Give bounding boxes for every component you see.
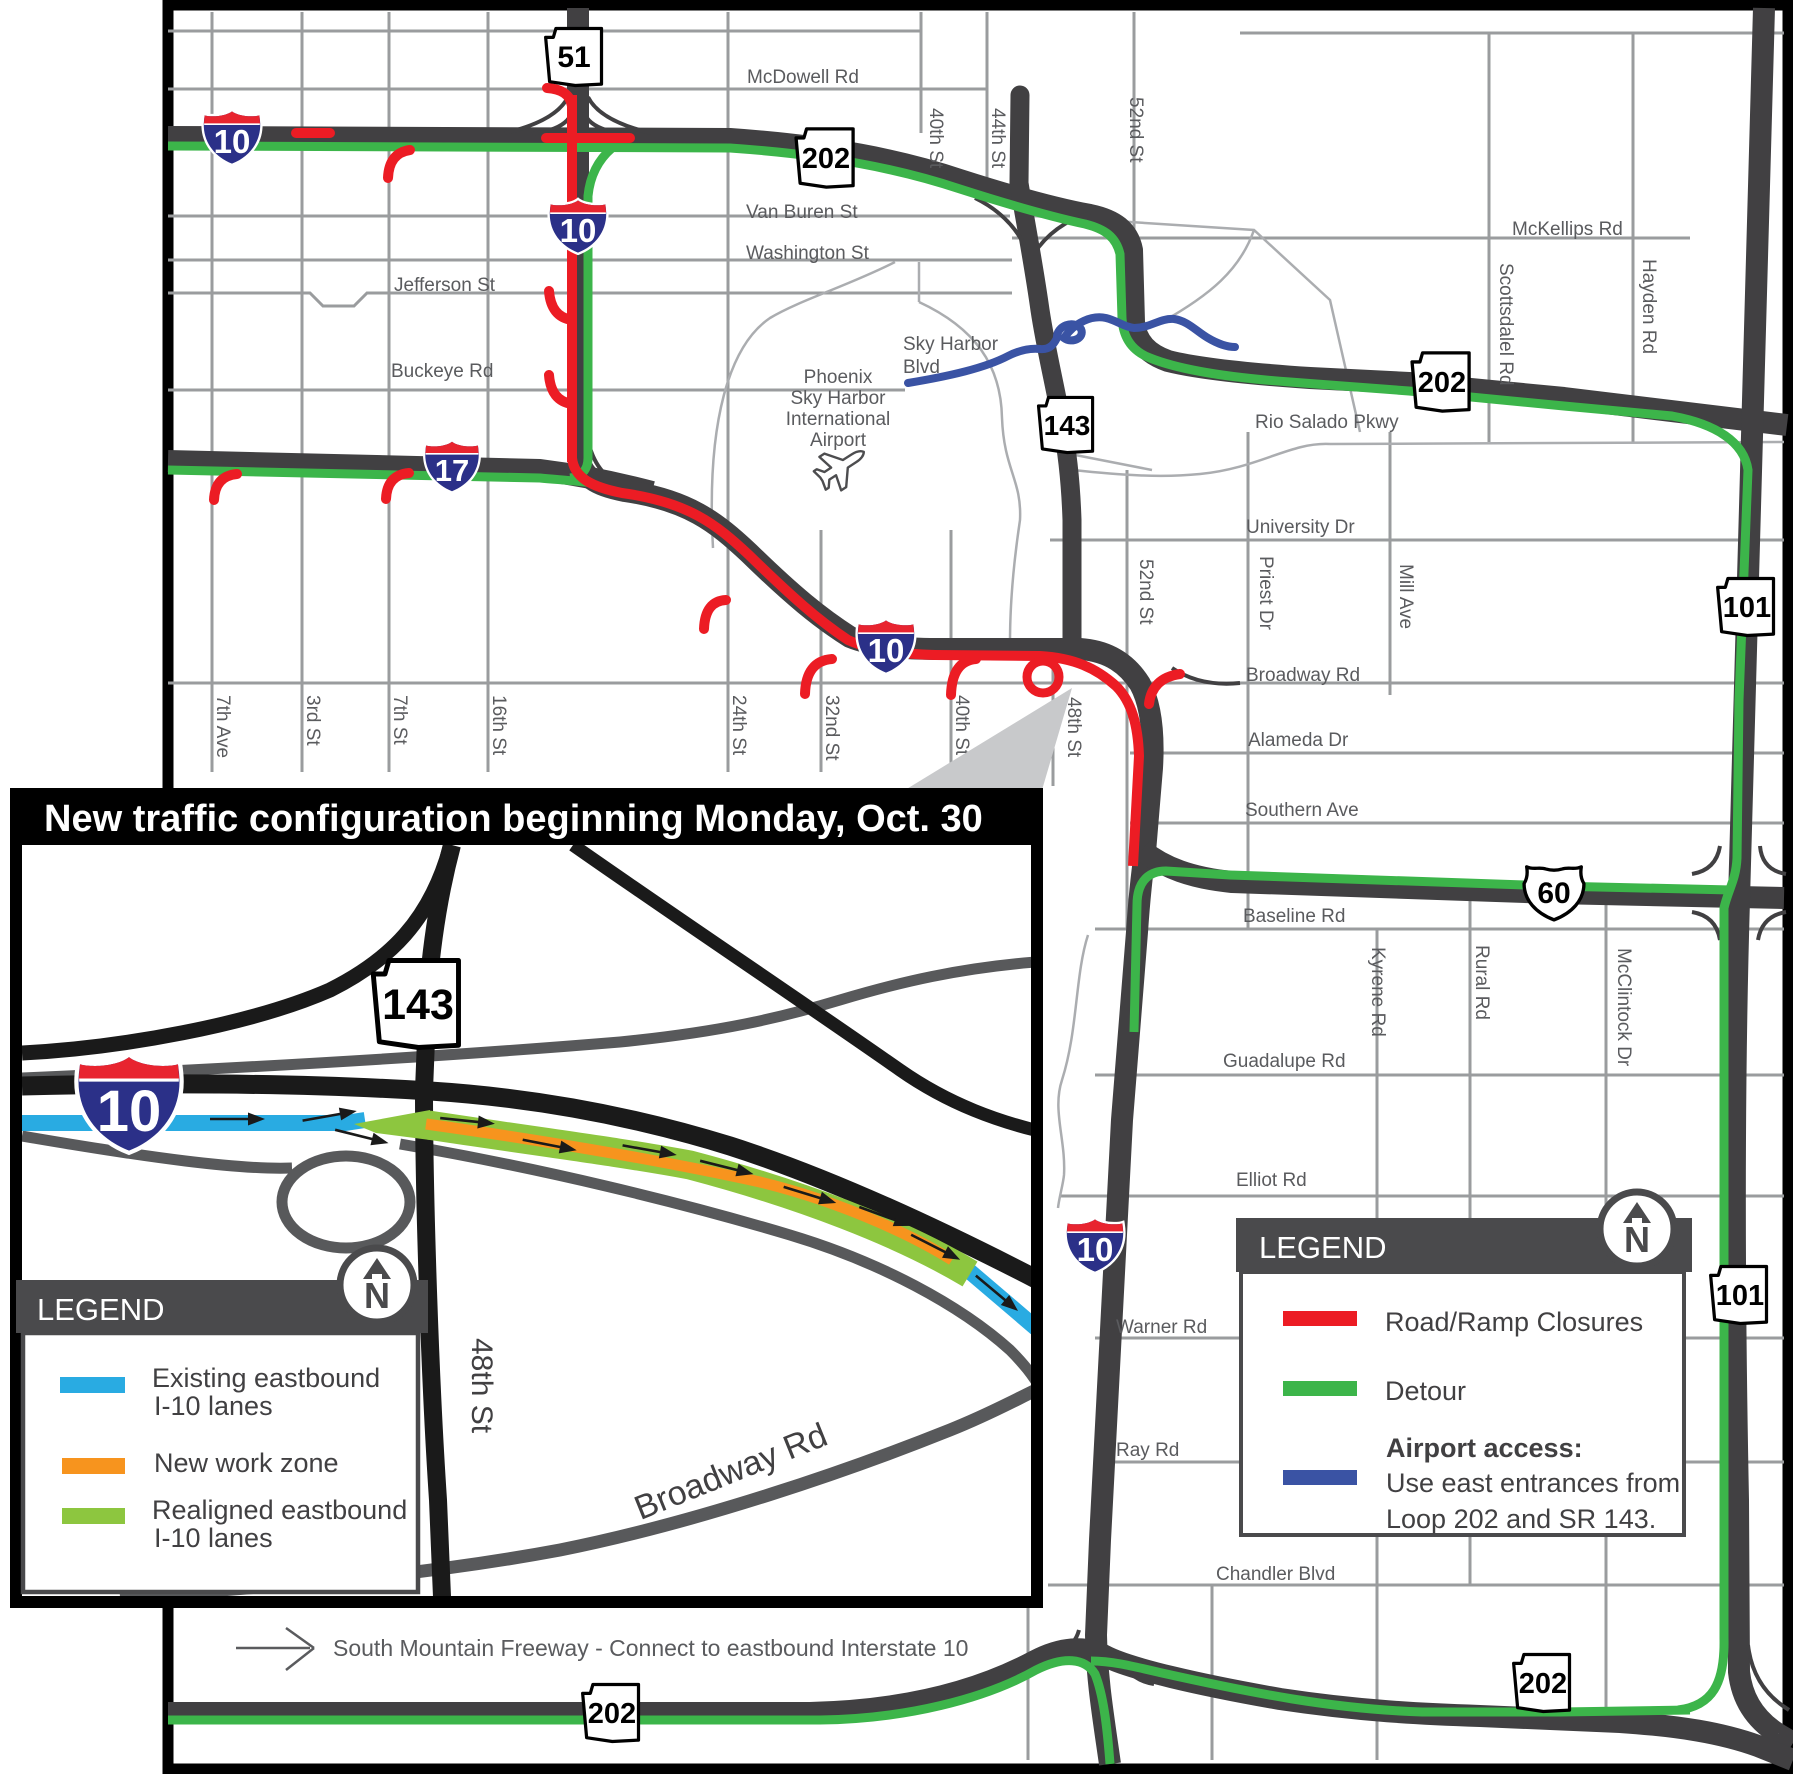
svg-text:40th St: 40th St <box>951 695 972 756</box>
svg-text:51: 51 <box>557 41 590 74</box>
svg-text:Kyrene Rd: Kyrene Rd <box>1367 947 1388 1037</box>
svg-text:Jefferson St: Jefferson St <box>394 275 496 296</box>
svg-text:McKellips Rd: McKellips Rd <box>1512 219 1623 240</box>
svg-text:I-10 lanes: I-10 lanes <box>154 1523 273 1553</box>
svg-text:Use east entrances from: Use east entrances from <box>1386 1468 1680 1498</box>
svg-text:Priest Dr: Priest Dr <box>1255 556 1276 631</box>
svg-text:Existing eastbound: Existing eastbound <box>152 1363 380 1393</box>
svg-text:Sky Harbor: Sky Harbor <box>790 388 886 409</box>
svg-text:17: 17 <box>435 453 469 488</box>
svg-text:Broadway Rd: Broadway Rd <box>1246 665 1360 686</box>
svg-text:Realigned eastbound: Realigned eastbound <box>152 1495 407 1525</box>
svg-text:202: 202 <box>802 143 850 175</box>
svg-text:McDowell Rd: McDowell Rd <box>747 67 859 88</box>
svg-text:10: 10 <box>1077 1231 1114 1268</box>
svg-text:Loop 202 and SR 143.: Loop 202 and SR 143. <box>1386 1504 1656 1534</box>
svg-text:52nd St: 52nd St <box>1125 97 1146 163</box>
svg-text:44th St: 44th St <box>987 108 1008 169</box>
svg-text:Detour: Detour <box>1385 1376 1466 1406</box>
svg-text:24th St: 24th St <box>728 695 749 756</box>
svg-text:10: 10 <box>868 632 905 669</box>
svg-text:202: 202 <box>1418 367 1466 399</box>
svg-text:Road/Ramp Closures: Road/Ramp Closures <box>1385 1307 1643 1337</box>
svg-text:40th St: 40th St <box>925 108 946 169</box>
svg-text:10: 10 <box>97 1079 162 1144</box>
svg-text:Baseline Rd: Baseline Rd <box>1243 906 1345 927</box>
svg-text:Blvd: Blvd <box>903 357 940 378</box>
svg-text:Southern Ave: Southern Ave <box>1245 800 1359 821</box>
svg-text:52nd St: 52nd St <box>1135 559 1156 625</box>
svg-text:Washington St: Washington St <box>746 243 870 264</box>
svg-text:Airport access:: Airport access: <box>1386 1433 1583 1463</box>
svg-text:101: 101 <box>1716 1280 1764 1312</box>
svg-text:7th Ave: 7th Ave <box>212 695 233 758</box>
svg-text:McClintock Dr: McClintock Dr <box>1613 948 1634 1067</box>
svg-text:101: 101 <box>1723 592 1771 624</box>
svg-text:202: 202 <box>588 1698 636 1730</box>
svg-text:10: 10 <box>214 123 251 160</box>
svg-text:Warner Rd: Warner Rd <box>1116 1317 1207 1338</box>
svg-text:Scottsdalel Rd: Scottsdalel Rd <box>1495 263 1516 386</box>
svg-text:Airport: Airport <box>810 430 867 451</box>
svg-text:Mill Ave: Mill Ave <box>1395 564 1416 629</box>
svg-text:Alameda Dr: Alameda Dr <box>1248 730 1349 751</box>
svg-text:143: 143 <box>1044 410 1091 441</box>
svg-text:60: 60 <box>1537 877 1570 910</box>
svg-text:7th St: 7th St <box>389 695 410 745</box>
svg-text:University Dr: University Dr <box>1246 517 1355 538</box>
svg-text:New work zone: New work zone <box>154 1448 339 1478</box>
svg-text:143: 143 <box>382 981 454 1029</box>
svg-text:LEGEND: LEGEND <box>37 1292 164 1327</box>
svg-text:Chandler Blvd: Chandler Blvd <box>1216 1564 1335 1585</box>
svg-text:10: 10 <box>560 212 597 249</box>
svg-text:Elliot Rd: Elliot Rd <box>1236 1170 1307 1191</box>
svg-text:202: 202 <box>1519 1668 1567 1700</box>
svg-text:International: International <box>786 409 891 430</box>
svg-text:Van Buren St: Van Buren St <box>746 202 858 223</box>
svg-text:Hayden Rd: Hayden Rd <box>1638 259 1659 354</box>
svg-text:3rd St: 3rd St <box>302 695 323 746</box>
svg-text:New traffic configuration begi: New traffic configuration beginning Mond… <box>44 798 983 840</box>
svg-text:16th St: 16th St <box>488 695 509 756</box>
svg-text:Sky Harbor: Sky Harbor <box>903 334 999 355</box>
svg-text:48th St: 48th St <box>465 1338 498 1434</box>
svg-text:I-10 lanes: I-10 lanes <box>154 1391 273 1421</box>
svg-text:South Mountain Freeway - Conne: South Mountain Freeway - Connect to east… <box>333 1635 968 1661</box>
svg-text:LEGEND: LEGEND <box>1259 1230 1386 1265</box>
svg-text:Phoenix: Phoenix <box>804 367 873 388</box>
svg-text:Rio Salado Pkwy: Rio Salado Pkwy <box>1255 412 1399 433</box>
svg-text:Buckeye Rd: Buckeye Rd <box>391 361 493 382</box>
svg-text:Ray Rd: Ray Rd <box>1116 1440 1179 1461</box>
svg-text:Rural Rd: Rural Rd <box>1471 945 1492 1020</box>
svg-text:Guadalupe Rd: Guadalupe Rd <box>1223 1051 1346 1072</box>
svg-text:32nd St: 32nd St <box>821 695 842 761</box>
